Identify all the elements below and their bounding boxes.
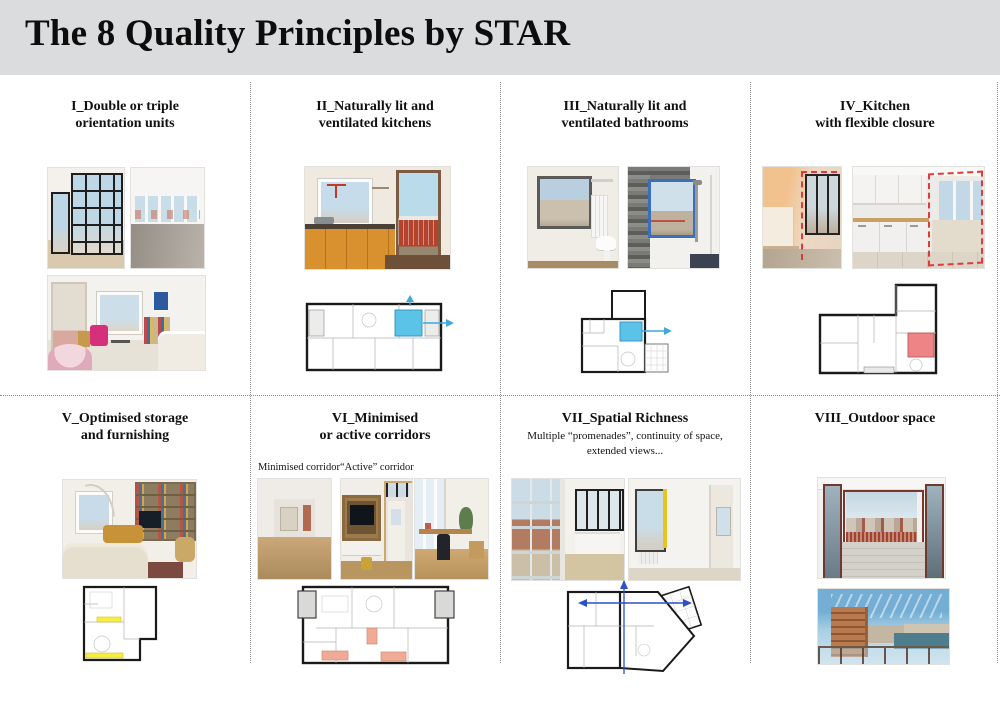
photo-window-wall-glazed-partition bbox=[512, 479, 624, 580]
panel-2-title-line1: II_Naturally lit and bbox=[250, 99, 500, 116]
panel-4-title: IV_Kitchen with flexible closure bbox=[750, 99, 1000, 132]
floorplan-spatial-richness-axes bbox=[556, 576, 708, 676]
photo-active-corridor-tv bbox=[341, 479, 412, 579]
panel-3-title-line1: III_Naturally lit and bbox=[500, 99, 750, 116]
floorplan-kitchen-closure-highlight bbox=[812, 281, 944, 377]
panel-5-title-line2: and furnishing bbox=[0, 428, 250, 445]
panel-6-title-line2: or active corridors bbox=[250, 428, 500, 445]
panel-3-title-line2: ventilated bathrooms bbox=[500, 116, 750, 133]
panel-6-title: VI_Minimised or active corridors bbox=[250, 411, 500, 444]
photo-balcony-city-canal-view bbox=[818, 589, 949, 664]
divider-vertical-3 bbox=[750, 82, 751, 663]
label-active-corridor: “Active” corridor bbox=[340, 462, 414, 473]
panel-3-title: III_Naturally lit and ventilated bathroo… bbox=[500, 99, 750, 132]
photo-empty-room-windows bbox=[131, 168, 204, 268]
panel-2-title: II_Naturally lit and ventilated kitchens bbox=[250, 99, 500, 132]
panel-1-title-line2: orientation units bbox=[0, 116, 250, 133]
page-title: The 8 Quality Principles by STAR bbox=[25, 12, 570, 55]
header-bar: The 8 Quality Principles by STAR bbox=[0, 0, 1000, 75]
floorplan-corridors-highlight bbox=[296, 582, 456, 668]
photo-minimised-corridor bbox=[258, 479, 331, 579]
photo-white-kitchen-open bbox=[853, 167, 984, 268]
panel-7-title-line1: VII_Spatial Richness bbox=[500, 411, 750, 428]
divider-vertical-right-edge bbox=[997, 82, 998, 663]
photo-terrace-through-doors bbox=[818, 478, 945, 578]
panel-5-title: V_Optimised storage and furnishing bbox=[0, 411, 250, 444]
panel-6-title-line1: VI_Minimised bbox=[250, 411, 500, 428]
panel-7-subtitle: Multiple “promenades”, continuity of spa… bbox=[508, 429, 742, 458]
photo-tall-corner-windows bbox=[48, 168, 124, 268]
panel-5-title-line1: V_Optimised storage bbox=[0, 411, 250, 428]
divider-vertical-1 bbox=[250, 82, 251, 663]
photo-furnished-living-room bbox=[48, 276, 205, 370]
photo-white-room-doorway bbox=[629, 479, 740, 580]
panel-8-title: VIII_Outdoor space bbox=[750, 411, 1000, 428]
panel-1-title-line1: I_Double or triple bbox=[0, 99, 250, 116]
panel-4-title-line1: IV_Kitchen bbox=[750, 99, 1000, 116]
photo-corridor-desk bbox=[415, 479, 488, 579]
photo-bathroom-window bbox=[528, 167, 618, 268]
divider-horizontal bbox=[0, 395, 1000, 396]
slide: The 8 Quality Principles by STAR I_Doubl… bbox=[0, 0, 1000, 707]
panel-1-title: I_Double or triple orientation units bbox=[0, 99, 250, 132]
panel-4-title-line2: with flexible closure bbox=[750, 116, 1000, 133]
photo-kitchen-glass-partition bbox=[763, 167, 841, 268]
label-minimised-corridor: Minimised corridor bbox=[258, 462, 340, 473]
floorplan-bathroom-highlight bbox=[576, 289, 676, 377]
photo-shower-window bbox=[628, 167, 719, 268]
divider-vertical-2 bbox=[500, 82, 501, 663]
photo-kitchen-with-balcony bbox=[305, 167, 450, 269]
floorplan-kitchen-highlight bbox=[303, 294, 455, 378]
panel-8-title-line1: VIII_Outdoor space bbox=[750, 411, 1000, 428]
photo-living-room-shelving bbox=[63, 480, 196, 578]
panel-7-title: VII_Spatial Richness bbox=[500, 411, 750, 428]
floorplan-storage-highlight bbox=[80, 584, 164, 664]
panel-2-title-line2: ventilated kitchens bbox=[250, 116, 500, 133]
